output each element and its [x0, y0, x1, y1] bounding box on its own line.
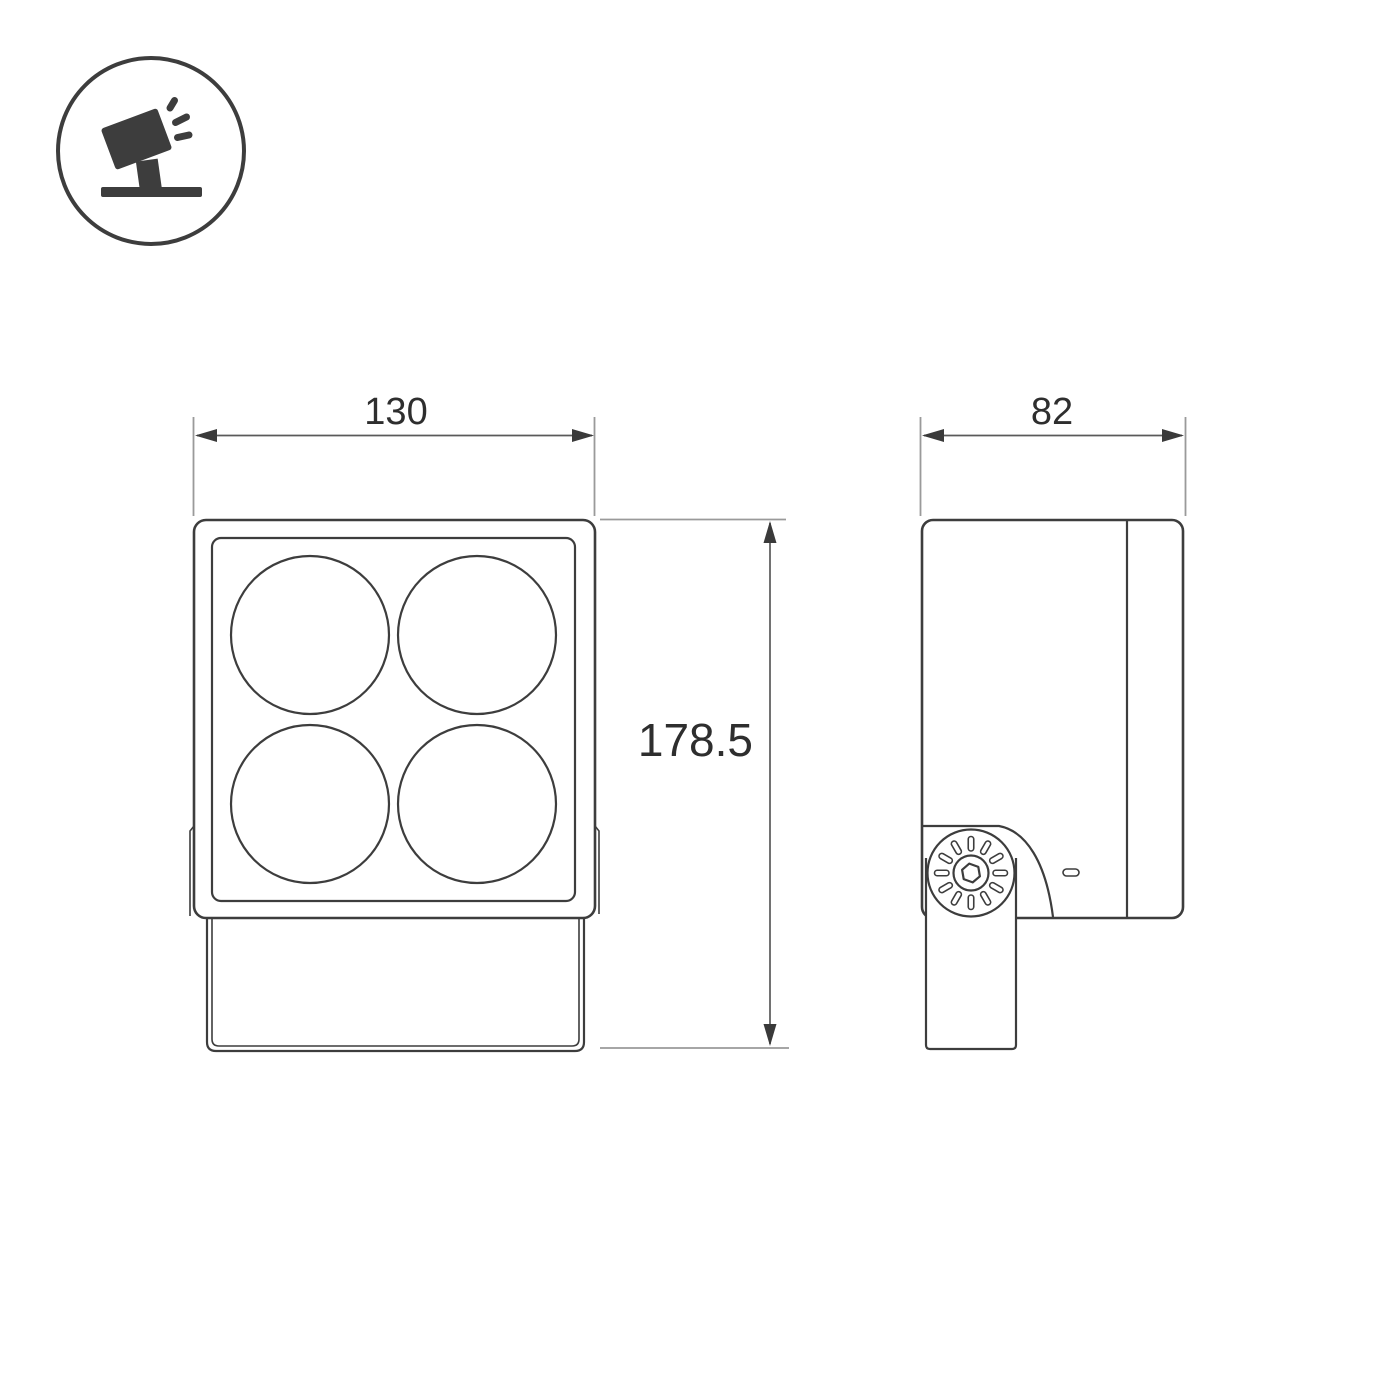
arrowhead-left — [922, 429, 944, 442]
arrowhead-top — [764, 521, 777, 543]
dimension-side-depth: 82 — [921, 391, 1186, 516]
technical-drawing-canvas: 130 82 178.5 — [0, 0, 1400, 1400]
dimension-label-overall-height: 178.5 — [638, 714, 753, 766]
icon-light-rays — [170, 101, 189, 138]
adjustment-knob — [928, 830, 1015, 917]
dimension-label-front-width: 130 — [364, 391, 427, 433]
side-view — [922, 520, 1183, 1049]
arrowhead-left — [195, 429, 217, 442]
arrowhead-right — [1162, 429, 1184, 442]
knob-outer-circle — [928, 830, 1015, 917]
dimension-label-side-depth: 82 — [1031, 391, 1073, 433]
arrowhead-right — [572, 429, 594, 442]
dimension-overall-height: 178.5 — [600, 520, 789, 1049]
arrowhead-bottom — [764, 1024, 777, 1046]
icon-lamp-head — [101, 108, 173, 170]
icon-base-bar — [101, 187, 202, 197]
dimension-front-width: 130 — [194, 391, 595, 516]
mounting-plate — [207, 919, 584, 1051]
tilted-floodlight-icon — [58, 58, 244, 244]
front-view — [190, 520, 599, 1051]
